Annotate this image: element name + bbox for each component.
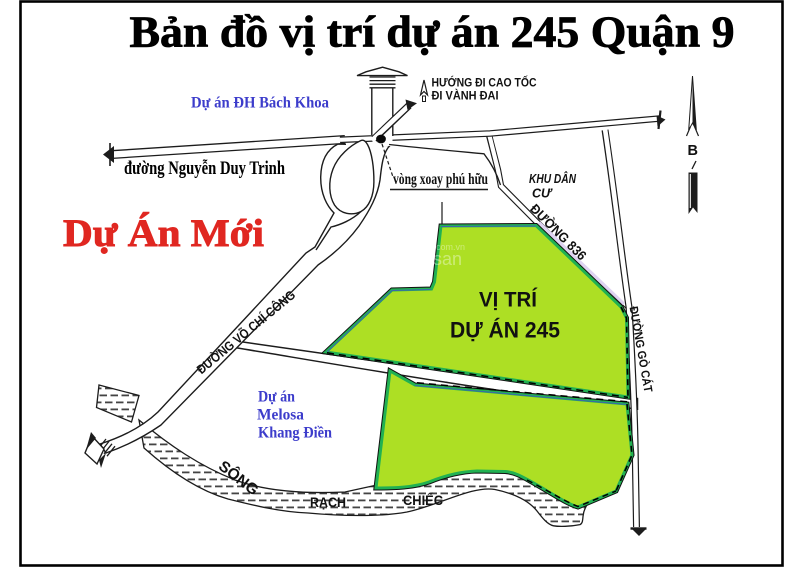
svg-text:DỰ ÁN 245: DỰ ÁN 245	[450, 318, 560, 343]
svg-text:Khang Điền: Khang Điền	[258, 425, 332, 442]
svg-text:CƯ: CƯ	[532, 187, 553, 201]
svg-text:san: san	[433, 249, 462, 269]
svg-text:Dự Án Mới: Dự Án Mới	[63, 211, 264, 255]
svg-text:đường Nguyễn Duy Trinh: đường Nguyễn Duy Trinh	[124, 158, 285, 179]
svg-text:Bản đồ vị trí dự án 245 Quận 9: Bản đồ vị trí dự án 245 Quận 9	[130, 8, 735, 57]
svg-text:Dự án ĐH Bách Khoa: Dự án ĐH Bách Khoa	[191, 95, 329, 112]
svg-text:Melosa: Melosa	[257, 407, 304, 424]
svg-text:vòng xoay phú hữu: vòng xoay phú hữu	[393, 171, 488, 188]
svg-text:HƯỚNG ĐI CAO TỐC: HƯỚNG ĐI CAO TỐC	[432, 76, 537, 90]
svg-text:KHU DÂN: KHU DÂN	[529, 171, 577, 186]
svg-text:Dự án: Dự án	[258, 389, 295, 406]
svg-text:CHIẾC: CHIẾC	[403, 493, 443, 508]
svg-text:B: B	[688, 143, 698, 159]
svg-text:ĐI VÀNH ĐAI: ĐI VÀNH ĐAI	[432, 90, 499, 103]
svg-text:VỊ TRÍ: VỊ TRÍ	[479, 289, 538, 312]
svg-text:RẠCH: RẠCH	[310, 495, 346, 510]
